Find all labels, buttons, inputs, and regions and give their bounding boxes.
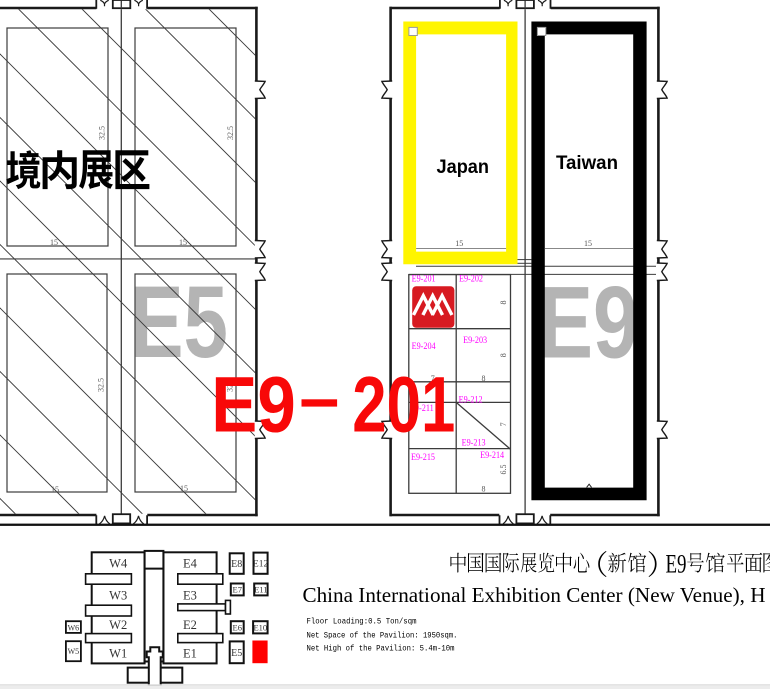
svg-text:15: 15 xyxy=(455,239,463,248)
svg-text:E11: E11 xyxy=(254,585,267,595)
svg-text:E8: E8 xyxy=(231,559,242,570)
svg-text:E1: E1 xyxy=(183,647,197,661)
svg-text:6.5: 6.5 xyxy=(499,465,508,475)
svg-text:32.5: 32.5 xyxy=(97,378,106,392)
svg-text:China International Exhibition: China International Exhibition Center (N… xyxy=(303,583,766,607)
svg-text:E10: E10 xyxy=(253,622,267,632)
svg-text:Floor Loading:0.5 Ton/sqm: Floor Loading:0.5 Ton/sqm xyxy=(307,617,417,627)
svg-text:E9: E9 xyxy=(666,550,687,579)
svg-text:E9-203: E9-203 xyxy=(463,336,487,346)
svg-text:W4: W4 xyxy=(109,557,128,571)
svg-text:E9-213: E9-213 xyxy=(462,439,486,449)
svg-text:7: 7 xyxy=(499,422,508,426)
svg-text:E9-202: E9-202 xyxy=(459,274,483,284)
svg-text:15: 15 xyxy=(180,484,188,493)
svg-text:E3: E3 xyxy=(183,588,197,602)
svg-text:W1: W1 xyxy=(109,647,127,661)
svg-text:E7: E7 xyxy=(233,585,242,595)
svg-text:E9-215: E9-215 xyxy=(411,453,435,463)
svg-text:8: 8 xyxy=(499,301,508,305)
svg-text:E9-204: E9-204 xyxy=(412,342,436,352)
svg-text:15: 15 xyxy=(179,238,187,247)
svg-text:E6: E6 xyxy=(233,622,242,632)
svg-text:Net Space of the Pavilion: 195: Net Space of the Pavilion: 1950sqm. xyxy=(307,630,458,640)
svg-text:W2: W2 xyxy=(109,618,127,632)
svg-text:15: 15 xyxy=(584,239,592,248)
svg-text:E9-201: E9-201 xyxy=(412,274,436,284)
svg-text:E4: E4 xyxy=(183,557,198,571)
svg-text:Net High of the Pavilion: 5.4m: Net High of the Pavilion: 5.4m-10m xyxy=(307,643,455,653)
svg-text:Taiwan: Taiwan xyxy=(556,152,618,174)
svg-text:201: 201 xyxy=(352,359,455,448)
svg-text:E9-214: E9-214 xyxy=(480,451,504,461)
svg-text:15: 15 xyxy=(50,238,58,247)
svg-text:32.5: 32.5 xyxy=(226,126,235,140)
svg-text:32.5: 32.5 xyxy=(98,126,107,140)
svg-text:Japan: Japan xyxy=(437,156,490,178)
svg-text:E9: E9 xyxy=(539,265,639,380)
svg-text:E2: E2 xyxy=(183,618,197,632)
svg-text:8: 8 xyxy=(499,353,508,357)
svg-text:E5: E5 xyxy=(231,648,242,659)
svg-text:E9-212: E9-212 xyxy=(459,396,483,406)
svg-text:W6: W6 xyxy=(68,623,80,632)
svg-text:W3: W3 xyxy=(109,588,127,602)
svg-text:15: 15 xyxy=(51,485,59,494)
svg-text:E9: E9 xyxy=(211,359,295,448)
svg-text:W5: W5 xyxy=(68,647,80,656)
svg-text:8: 8 xyxy=(482,485,486,494)
svg-text:E12: E12 xyxy=(253,560,269,570)
svg-text:8: 8 xyxy=(482,374,486,383)
